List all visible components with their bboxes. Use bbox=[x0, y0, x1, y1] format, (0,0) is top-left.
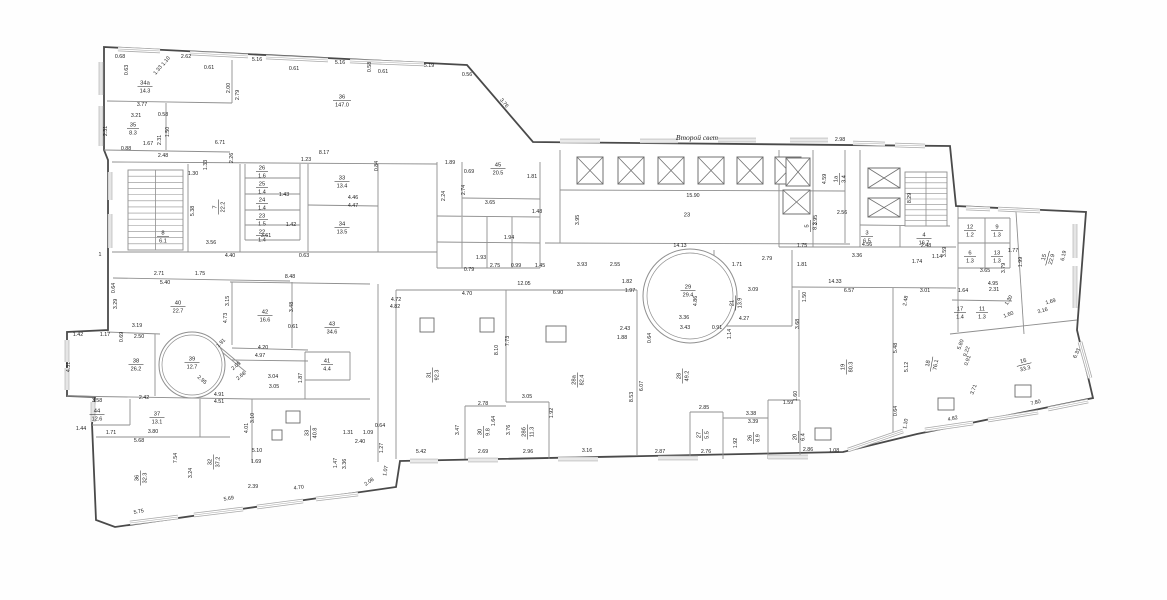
dimension-label: 3.61 bbox=[261, 233, 271, 239]
column-block bbox=[815, 428, 831, 440]
room-number: 6 bbox=[968, 251, 971, 257]
room-area: 26.2 bbox=[131, 366, 142, 372]
room-area: 11.3 bbox=[529, 427, 535, 437]
dimension-label: 1.45 bbox=[535, 263, 545, 269]
room-area: 49.2 bbox=[684, 371, 690, 382]
dimension-label: 1.88 bbox=[617, 335, 627, 341]
dimension-label: 0.56 bbox=[462, 72, 472, 78]
dimension-label: 3.95 bbox=[575, 215, 581, 225]
dimension-label: 1.93 bbox=[476, 255, 486, 261]
dimension-label: 2.76 bbox=[701, 449, 711, 455]
room-area: 12.6 bbox=[92, 416, 103, 422]
dimension-label: 4.86 bbox=[693, 296, 699, 306]
dimension-label: 1.47 bbox=[333, 458, 339, 468]
dimension-label: 1.50 bbox=[165, 127, 171, 137]
room-area: 29.4 bbox=[683, 292, 694, 298]
room-number: 28б bbox=[522, 426, 528, 436]
dimension-label: 0.61 bbox=[204, 65, 214, 71]
dimension-label: 3.19 bbox=[132, 323, 142, 329]
building-outline bbox=[67, 47, 1093, 527]
dimension-label: 3.36 bbox=[852, 253, 862, 259]
room-area: 4.4 bbox=[323, 366, 331, 372]
room-number: 34а bbox=[140, 81, 150, 87]
dimension-label: 8.29 bbox=[907, 193, 913, 203]
dimension-label: 1.87 bbox=[298, 373, 304, 383]
room-number: 17 bbox=[957, 307, 963, 313]
room-area: 1.3 bbox=[966, 258, 974, 264]
dimension-label: 2.86 bbox=[803, 447, 813, 453]
room-area: 8.3 bbox=[129, 130, 137, 136]
dimension-label: 4.56 bbox=[862, 242, 872, 248]
dimension-label: 1.14 bbox=[932, 254, 942, 260]
dimension-label: 4.31 bbox=[66, 362, 72, 372]
dimension-label: 2.40 bbox=[355, 439, 365, 445]
room-number: 37 bbox=[154, 412, 160, 418]
dimension-label: 5.38 bbox=[190, 206, 196, 216]
dimension-label: 2.39 bbox=[248, 484, 258, 490]
room-number: 40 bbox=[175, 301, 181, 307]
dimension-label: 0.68 bbox=[115, 54, 125, 60]
dimension-label: 8.53 bbox=[629, 392, 635, 402]
dimension-label: 3.95 bbox=[813, 215, 819, 225]
dimension-label: 6.71 bbox=[215, 140, 225, 146]
room-number: 26 bbox=[748, 435, 754, 441]
room-area: 5.5 bbox=[704, 431, 710, 439]
dimension-label: 2.96 bbox=[523, 449, 533, 455]
room-area: 40.8 bbox=[312, 428, 318, 439]
dimension-label: 5.19 bbox=[424, 63, 434, 69]
column-block bbox=[286, 411, 300, 423]
dimension-label: 2.85 bbox=[699, 405, 709, 411]
room-area: 1.4 bbox=[258, 205, 266, 211]
dimension-label: 3.05 bbox=[269, 384, 279, 390]
dimension-label: 4.82 bbox=[390, 304, 400, 310]
dimension-label: 2.43 bbox=[620, 326, 630, 332]
dimension-label: 2.00 bbox=[226, 83, 232, 93]
dimension-label: 4.95 bbox=[988, 281, 998, 287]
dimension-label: 5.10 bbox=[252, 448, 262, 454]
dimension-label: 1.99 bbox=[1018, 257, 1024, 267]
dimension-label: 0.61 bbox=[378, 69, 388, 75]
dimension-label: 1.50 bbox=[802, 292, 808, 302]
dimension-label: 5.40 bbox=[160, 280, 170, 286]
room-number: 13 bbox=[994, 251, 1000, 257]
dimension-label: 1.92 bbox=[733, 438, 739, 448]
dimension-label: 3.39 bbox=[748, 419, 758, 425]
dimension-label: 4.01 bbox=[244, 423, 250, 433]
dimension-label: 1.92 bbox=[549, 408, 555, 418]
dimension-label: 7.73 bbox=[505, 336, 511, 346]
room-area: 13.5 bbox=[337, 229, 348, 235]
dimension-label: 1.67 bbox=[143, 141, 153, 147]
dimension-label: 2.74 bbox=[461, 185, 467, 195]
dimension-label: 4.46 bbox=[348, 195, 358, 201]
annotation-text: Второй свет bbox=[676, 133, 719, 142]
room-number: 36 bbox=[135, 475, 141, 481]
room-number: 11 bbox=[979, 307, 985, 313]
room-number: 39 bbox=[189, 357, 195, 363]
dimension-label: 1.42 bbox=[73, 332, 83, 338]
dimension-label: 6.07 bbox=[639, 381, 645, 391]
dimension-label: 12.05 bbox=[517, 281, 530, 287]
room-number: 23 bbox=[684, 213, 690, 219]
dimension-label: 0.58 bbox=[158, 112, 168, 118]
dimension-label: 4.27 bbox=[739, 316, 749, 322]
room-area: 1.3 bbox=[993, 258, 1001, 264]
dimension-label: 2.69 bbox=[478, 449, 488, 455]
dimension-label: 3.15 bbox=[225, 296, 231, 306]
dimension-label: 1.14 bbox=[727, 329, 733, 339]
dimension-label: 2.87 bbox=[655, 449, 665, 455]
dimension-label: 1.23 bbox=[301, 157, 311, 163]
dimension-label: 1.77 bbox=[1008, 248, 1018, 254]
room-number: 44 bbox=[94, 409, 101, 415]
dimension-label: 1.69 bbox=[251, 459, 261, 465]
dimension-label: 2.78 bbox=[478, 401, 488, 407]
column-block bbox=[420, 318, 434, 332]
dimension-label: 4.59 bbox=[822, 174, 828, 184]
dimension-label: 1.43 bbox=[279, 192, 289, 198]
dimension-label: 0.84 bbox=[374, 161, 380, 171]
dimension-label: 4.72 bbox=[391, 297, 401, 303]
dimension-label: 4.70 bbox=[462, 291, 472, 297]
room-area: 1.5 bbox=[258, 221, 266, 227]
room-number: 42 bbox=[262, 310, 268, 316]
dimension-label: 2.31 bbox=[989, 287, 999, 293]
column-block bbox=[546, 326, 566, 342]
dimension-label: 1.75 bbox=[797, 243, 807, 249]
dimension-label: 2.62 bbox=[181, 54, 191, 60]
room-number: 29 bbox=[685, 285, 691, 291]
dimension-label: 15.90 bbox=[686, 193, 699, 199]
dimension-label: 1.71 bbox=[732, 262, 742, 268]
dimension-label: 6.57 bbox=[844, 288, 854, 294]
dimension-label: 5.48 bbox=[893, 343, 899, 353]
room-area: 1.3 bbox=[978, 314, 986, 320]
dimension-label: 2.71 bbox=[154, 271, 164, 277]
room-area: 13.9 bbox=[737, 298, 743, 309]
dimension-label: 0.61 bbox=[289, 66, 299, 72]
dimension-label: 2.48 bbox=[921, 243, 931, 249]
room-area: 14.3 bbox=[140, 88, 151, 94]
dimension-label: 2.98 bbox=[835, 137, 845, 143]
dimension-label: 2.31 bbox=[157, 135, 163, 145]
dimension-label: 1.75 bbox=[195, 271, 205, 277]
dimension-label: 1.89 bbox=[445, 160, 455, 166]
room-number: 26 bbox=[259, 166, 265, 172]
dimension-label: 14.13 bbox=[673, 243, 686, 249]
dimension-label: 0.64 bbox=[893, 406, 899, 416]
room-number: 21 bbox=[730, 300, 736, 306]
dimension-label: 0.61 bbox=[288, 324, 298, 330]
column-block bbox=[938, 398, 954, 410]
dimension-label: 2.79 bbox=[762, 256, 772, 262]
dimension-label: 3.05 bbox=[522, 394, 532, 400]
dimension-label: 1.94 bbox=[504, 235, 514, 241]
room-area: 92.3 bbox=[434, 370, 440, 381]
room-number: 23 bbox=[259, 214, 265, 220]
dimension-label: 3.59 bbox=[942, 247, 948, 257]
dimension-label: 5.16 bbox=[335, 60, 345, 66]
dimension-label: 1.42 bbox=[286, 222, 296, 228]
dimension-label: 7.54 bbox=[173, 453, 179, 463]
dimension-label: 1.30 bbox=[188, 171, 198, 177]
dimension-label: 3.04 bbox=[268, 374, 278, 380]
room-area: 147.0 bbox=[335, 102, 349, 108]
dimension-label: 0.69 bbox=[464, 169, 474, 175]
dimension-label: 1.64 bbox=[958, 288, 968, 294]
dimension-label: 3.10 bbox=[250, 413, 256, 423]
room-area: 22.2 bbox=[220, 202, 226, 213]
dimension-label: 2.26 bbox=[229, 153, 235, 163]
dimension-label: 1.27 bbox=[379, 443, 385, 453]
room-area: 6.4 bbox=[800, 433, 806, 441]
room-area: 34.6 bbox=[327, 329, 338, 335]
dimension-label: 3.76 bbox=[506, 425, 512, 435]
room-area: 1.4 bbox=[956, 314, 964, 320]
dimension-label: 3.79 bbox=[1001, 263, 1007, 273]
room-number: 33 bbox=[339, 176, 345, 182]
room-area: 13.4 bbox=[337, 183, 348, 189]
room-area: 22.7 bbox=[173, 308, 184, 314]
dimension-label: 5.68 bbox=[134, 438, 144, 444]
room-area: 32.3 bbox=[142, 473, 148, 484]
dimension-label: 14.33 bbox=[828, 279, 841, 285]
room-number: 41 bbox=[324, 359, 330, 365]
room-area: 1.2 bbox=[966, 232, 974, 238]
room-number: 28 bbox=[677, 373, 683, 379]
room-area: 16.6 bbox=[260, 317, 271, 323]
dimension-label: 1.74 bbox=[912, 259, 922, 265]
room-area: 9.8 bbox=[485, 428, 491, 436]
room-area: 1.6 bbox=[258, 173, 266, 179]
room-number: 32 bbox=[208, 459, 214, 465]
dimension-label: 4.51 bbox=[214, 399, 224, 405]
room-area: 20.5 bbox=[493, 170, 504, 176]
dimension-label: 6.90 bbox=[553, 290, 563, 296]
room-number: 19 bbox=[841, 364, 847, 370]
dimension-label: 0.64 bbox=[111, 283, 117, 293]
floor-plan-page: 34а14.3358.336147.0722.286.1261.6251.424… bbox=[0, 0, 1167, 600]
dimension-label: 1.60 bbox=[793, 391, 799, 401]
room-area: 80.3 bbox=[848, 362, 854, 373]
dimension-label: 0.79 bbox=[464, 267, 474, 273]
room-number: 20 bbox=[793, 434, 799, 440]
room-number: 31 bbox=[427, 372, 433, 378]
dimension-label: 3.48 bbox=[289, 302, 295, 312]
dimension-label: 0.58 bbox=[367, 62, 373, 72]
dimension-label: 0.99 bbox=[511, 263, 521, 269]
dimension-label: 2.42 bbox=[139, 395, 149, 401]
column-block bbox=[480, 318, 494, 332]
dimension-label: 4.91 bbox=[214, 392, 224, 398]
dimension-label: 0.63 bbox=[299, 253, 309, 259]
dimension-label: 4.97 bbox=[255, 353, 265, 359]
room-number: 28а bbox=[572, 374, 578, 384]
room-number: 35 bbox=[130, 123, 136, 129]
dimension-label: 2.56 bbox=[837, 210, 847, 216]
room-number: 25 bbox=[259, 182, 265, 188]
dimension-label: 2.50 bbox=[134, 334, 144, 340]
dimension-label: 1.31 bbox=[343, 430, 353, 436]
dimension-label: 4.73 bbox=[223, 313, 229, 323]
dimension-label: 3.65 bbox=[980, 268, 990, 274]
dimension-label: 3.29 bbox=[113, 299, 119, 309]
dimension-label: 3.93 bbox=[577, 262, 587, 268]
dimension-label: 3.56 bbox=[206, 240, 216, 246]
dimension-label: 3.16 bbox=[582, 448, 592, 454]
room-area: 3.4 bbox=[841, 175, 847, 183]
dimension-label: 4.47 bbox=[348, 203, 358, 209]
room-number: 43 bbox=[329, 322, 335, 328]
dimension-label: 0.63 bbox=[124, 65, 130, 75]
room-area: 37.2 bbox=[215, 457, 221, 468]
dimension-label: 2.31 bbox=[103, 126, 109, 136]
dimension-label: 1.97 bbox=[625, 288, 635, 294]
dimension-label: 1.44 bbox=[76, 426, 86, 432]
dimension-label: 4.40 bbox=[225, 253, 235, 259]
dimension-label: 8.17 bbox=[319, 150, 329, 156]
dimension-label: 3.77 bbox=[137, 102, 147, 108]
dimension-label: 3.80 bbox=[148, 429, 158, 435]
dimension-label: 2.24 bbox=[441, 191, 447, 201]
room-area: 12.7 bbox=[187, 364, 198, 370]
dimension-label: 1.82 bbox=[622, 279, 632, 285]
room-area: 13.1 bbox=[152, 419, 163, 425]
dimension-label: 0.91 bbox=[712, 325, 722, 331]
room-number: 9 bbox=[995, 225, 998, 231]
room-number: 45 bbox=[495, 163, 501, 169]
room-number: 12 bbox=[967, 225, 973, 231]
dimension-label: 5.12 bbox=[904, 362, 910, 372]
dimension-label: 1.48 bbox=[532, 209, 542, 215]
room-area: 8.9 bbox=[755, 434, 761, 442]
room-area: 82.4 bbox=[579, 375, 585, 386]
dimension-label: 3.36 bbox=[679, 315, 689, 321]
dimension-label: 4.20 bbox=[258, 345, 268, 351]
room-number: 7 bbox=[213, 205, 219, 208]
dimension-label: 3.38 bbox=[746, 411, 756, 417]
dimension-label: 3.43 bbox=[680, 325, 690, 331]
dimension-label: 1.17 bbox=[100, 332, 110, 338]
dimension-label: 8.10 bbox=[494, 345, 500, 355]
dimension-label: 1.09 bbox=[363, 430, 373, 436]
dimension-label: 3.09 bbox=[748, 287, 758, 293]
dimension-label: 3.24 bbox=[188, 468, 194, 478]
dimension-label: 2.79 bbox=[235, 90, 241, 100]
dimension-label: 3.21 bbox=[131, 113, 141, 119]
dimension-label: 0.64 bbox=[647, 333, 653, 343]
room-number: 34 bbox=[339, 222, 346, 228]
dimension-label: 1.08 bbox=[829, 448, 839, 454]
room-area: 6.1 bbox=[159, 238, 167, 244]
dimension-label: 0.64 bbox=[375, 423, 385, 429]
column-block bbox=[1015, 385, 1031, 397]
room-number: 38 bbox=[133, 359, 139, 365]
dimension-label: 2.75 bbox=[490, 263, 500, 269]
room-number: 30 bbox=[478, 429, 484, 435]
dimension-label: 3.47 bbox=[455, 425, 461, 435]
dimension-label: 0.88 bbox=[121, 146, 131, 152]
column-block bbox=[272, 430, 282, 440]
dimension-label: 1.33 bbox=[203, 160, 209, 170]
dimension-label: 5.42 bbox=[416, 449, 426, 455]
dimension-label: 1.59 bbox=[783, 400, 793, 406]
room-number: 36 bbox=[339, 95, 345, 101]
dimension-label: 3.01 bbox=[920, 288, 930, 294]
room-number: 1а bbox=[834, 175, 840, 182]
dimension-label: 1.64 bbox=[491, 416, 497, 426]
room-number: 3 bbox=[865, 231, 868, 237]
room-number: 24 bbox=[259, 198, 266, 204]
room-number: 8 bbox=[161, 231, 164, 237]
dimension-label: 2.48 bbox=[158, 153, 168, 159]
room-number: 5 bbox=[805, 224, 811, 227]
dimension-label: 1.81 bbox=[797, 262, 807, 268]
dimension-label: 8.48 bbox=[285, 274, 295, 280]
annotation-text: 1 bbox=[99, 252, 102, 258]
room-number: 27 bbox=[697, 432, 703, 438]
dimension-label: 3.68 bbox=[795, 319, 801, 329]
dimension-label: 1.81 bbox=[527, 174, 537, 180]
dimension-label: 0.69 bbox=[119, 332, 125, 342]
room-number: 33 bbox=[305, 430, 311, 436]
dimension-label: 3.36 bbox=[342, 459, 348, 469]
dimension-label: 2.55 bbox=[610, 262, 620, 268]
room-area: 1.3 bbox=[993, 232, 1001, 238]
dimension-label: 5.16 bbox=[252, 57, 262, 63]
dimension-label: 1.71 bbox=[106, 430, 116, 436]
floor-plan-drawing: 34а14.3358.336147.0722.286.1261.6251.424… bbox=[0, 0, 1167, 600]
room-label: 23 bbox=[684, 213, 690, 219]
dimension-label: 3.65 bbox=[485, 200, 495, 206]
dimension-label: 3.58 bbox=[92, 398, 102, 404]
room-area: 1.4 bbox=[258, 189, 266, 195]
